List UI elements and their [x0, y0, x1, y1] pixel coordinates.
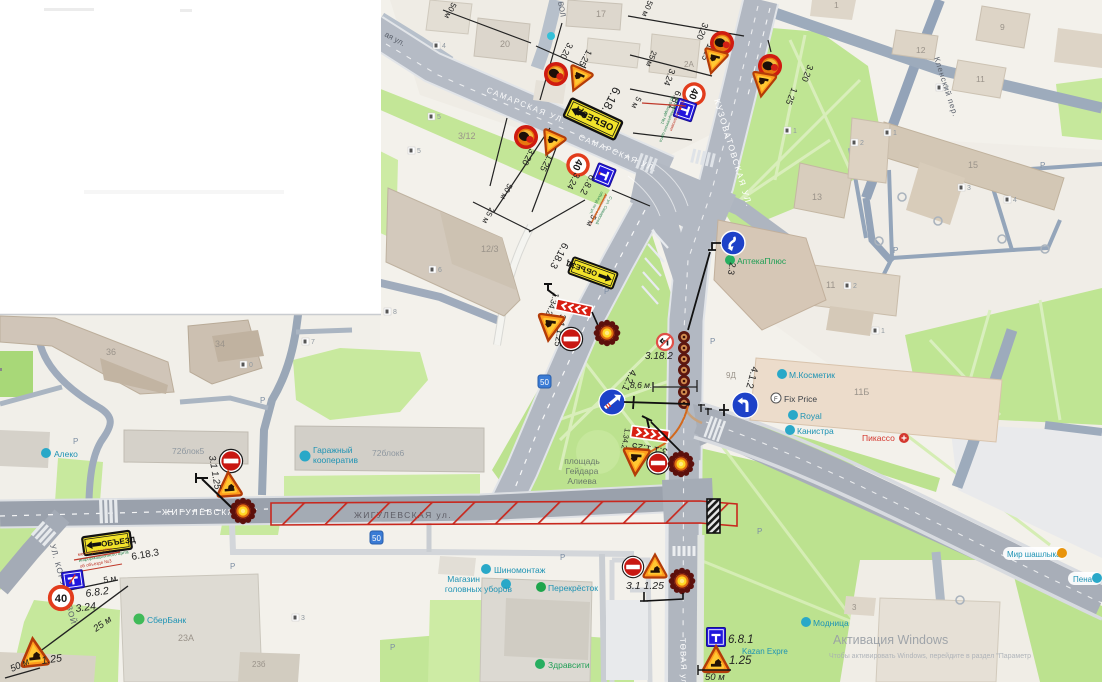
svg-text:P: P — [73, 437, 78, 446]
svg-text:Здравсити: Здравсити — [548, 660, 590, 670]
svg-text:Алеко: Алеко — [54, 449, 78, 459]
svg-text:2: 2 — [853, 283, 857, 290]
svg-text:2А: 2А — [684, 60, 694, 69]
svg-text:F: F — [774, 397, 778, 403]
svg-text:P: P — [260, 396, 265, 405]
svg-text:кооператив: кооператив — [313, 455, 359, 465]
svg-text:11: 11 — [976, 74, 985, 84]
svg-text:3: 3 — [301, 615, 305, 622]
svg-text:36: 36 — [106, 347, 116, 357]
svg-text:Активация Windows: Активация Windows — [833, 633, 948, 647]
svg-text:1: 1 — [834, 0, 839, 10]
svg-text:P: P — [390, 643, 395, 652]
svg-text:Пена: Пена — [1073, 575, 1093, 584]
svg-text:12: 12 — [916, 45, 926, 55]
svg-text:5: 5 — [417, 148, 421, 155]
svg-text:Мир шашлыка: Мир шашлыка — [1007, 550, 1061, 559]
svg-text:М.Косметик: М.Косметик — [789, 370, 835, 380]
svg-text:Гейдара: Гейдара — [566, 466, 599, 476]
svg-text:7: 7 — [311, 339, 315, 346]
svg-text:P: P — [1040, 161, 1045, 170]
svg-text:Модница: Модница — [813, 618, 849, 628]
svg-text:12/3: 12/3 — [481, 244, 499, 254]
svg-text:Гаражный: Гаражный — [313, 445, 353, 455]
svg-text:Чтобы активировать Windows, пе: Чтобы активировать Windows, перейдите в … — [829, 652, 1031, 660]
svg-text:6: 6 — [438, 267, 442, 274]
svg-text:Перекрёсток: Перекрёсток — [548, 583, 598, 593]
svg-text:P: P — [560, 553, 565, 562]
svg-text:ТОВАЯ ул.: ТОВАЯ ул. — [678, 638, 689, 682]
svg-text:23б: 23б — [252, 660, 266, 669]
svg-text:3: 3 — [967, 185, 971, 192]
svg-text:13: 13 — [812, 192, 822, 202]
svg-text:Royal: Royal — [800, 411, 822, 421]
svg-text:головных уборов: головных уборов — [445, 584, 513, 594]
svg-text:50 м: 50 м — [705, 672, 725, 682]
svg-text:1: 1 — [881, 328, 885, 335]
svg-text:3: 3 — [852, 603, 857, 612]
svg-text:Алиева: Алиева — [567, 476, 597, 486]
svg-text:Пикассо: Пикассо — [862, 433, 895, 443]
svg-text:Fix Price: Fix Price — [784, 394, 817, 404]
svg-text:9: 9 — [1000, 22, 1005, 32]
svg-text:АптекаПлюс: АптекаПлюс — [737, 256, 787, 266]
svg-text:5: 5 — [437, 114, 441, 121]
svg-text:4: 4 — [1013, 197, 1017, 204]
svg-text:площадь: площадь — [564, 456, 600, 466]
svg-text:Канистра: Канистра — [797, 426, 834, 436]
svg-text:Шиномонтаж: Шиномонтаж — [494, 565, 546, 575]
svg-text:72блок5: 72блок5 — [172, 446, 204, 456]
svg-text:P: P — [757, 527, 762, 536]
svg-text:3/12: 3/12 — [458, 131, 476, 141]
svg-text:P: P — [893, 246, 898, 255]
svg-text:9Д: 9Д — [726, 371, 736, 380]
svg-text:11: 11 — [826, 280, 835, 290]
svg-text:50: 50 — [540, 378, 549, 387]
svg-text:6.8.1: 6.8.1 — [728, 634, 754, 646]
svg-text:P: P — [230, 562, 235, 571]
svg-text:23А: 23А — [178, 633, 194, 643]
svg-text:34: 34 — [215, 339, 225, 349]
svg-text:2: 2 — [860, 140, 864, 147]
svg-text:8,6 м.: 8,6 м. — [630, 380, 652, 390]
svg-text:3.18.2: 3.18.2 — [645, 351, 673, 362]
svg-text:15: 15 — [968, 160, 978, 170]
svg-text:4: 4 — [442, 43, 446, 50]
svg-text:СберБанк: СберБанк — [147, 615, 186, 625]
svg-text:72блок6: 72блок6 — [372, 448, 404, 458]
svg-text:2.3: 2.3 — [726, 262, 738, 276]
svg-text:50: 50 — [372, 534, 381, 543]
svg-text:1: 1 — [893, 130, 897, 137]
svg-text:11Б: 11Б — [854, 387, 869, 397]
svg-text:P: P — [710, 337, 715, 346]
svg-text:Магазин: Магазин — [447, 574, 480, 584]
svg-text:1.25: 1.25 — [729, 655, 752, 667]
svg-text:0: 0 — [249, 362, 253, 369]
svg-text:8: 8 — [393, 309, 397, 316]
svg-text:2: 2 — [945, 85, 949, 92]
svg-text:1: 1 — [793, 128, 797, 135]
svg-text:3.1 1.25: 3.1 1.25 — [626, 580, 664, 592]
svg-text:17: 17 — [596, 9, 606, 19]
svg-text:20: 20 — [500, 39, 510, 49]
